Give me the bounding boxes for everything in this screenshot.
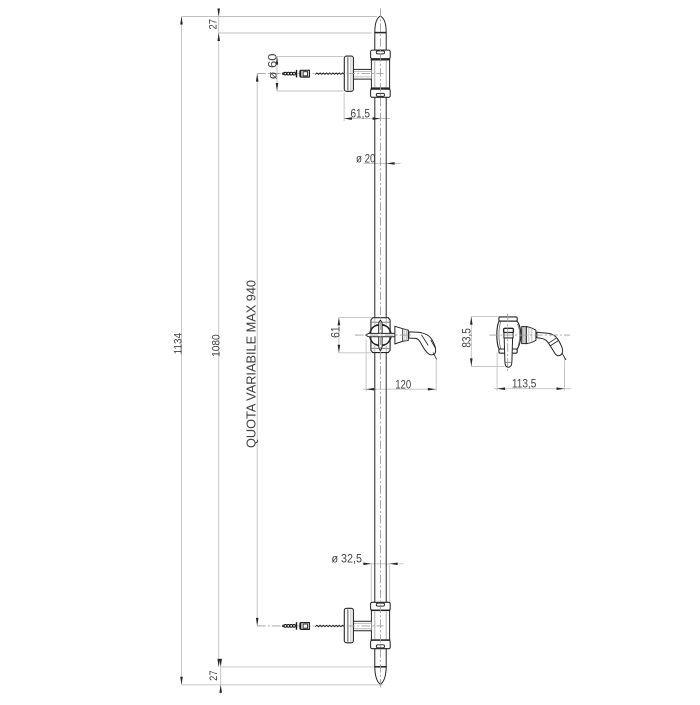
svg-text:QUOTA VARIABILE MAX 940: QUOTA VARIABILE MAX 940 xyxy=(243,280,258,448)
svg-text:1134: 1134 xyxy=(173,333,185,355)
svg-text:61,5: 61,5 xyxy=(350,107,370,121)
svg-text:ø 20: ø 20 xyxy=(356,152,376,166)
svg-text:27: 27 xyxy=(208,670,220,681)
svg-text:ø 60: ø 60 xyxy=(265,53,279,79)
svg-text:120: 120 xyxy=(395,378,411,392)
svg-text:61: 61 xyxy=(328,326,342,338)
svg-text:27: 27 xyxy=(208,19,220,30)
svg-text:ø 32,5: ø 32,5 xyxy=(331,552,362,566)
svg-text:1080: 1080 xyxy=(210,334,222,357)
svg-text:83,5: 83,5 xyxy=(459,328,473,348)
svg-text:113,5: 113,5 xyxy=(512,376,537,390)
